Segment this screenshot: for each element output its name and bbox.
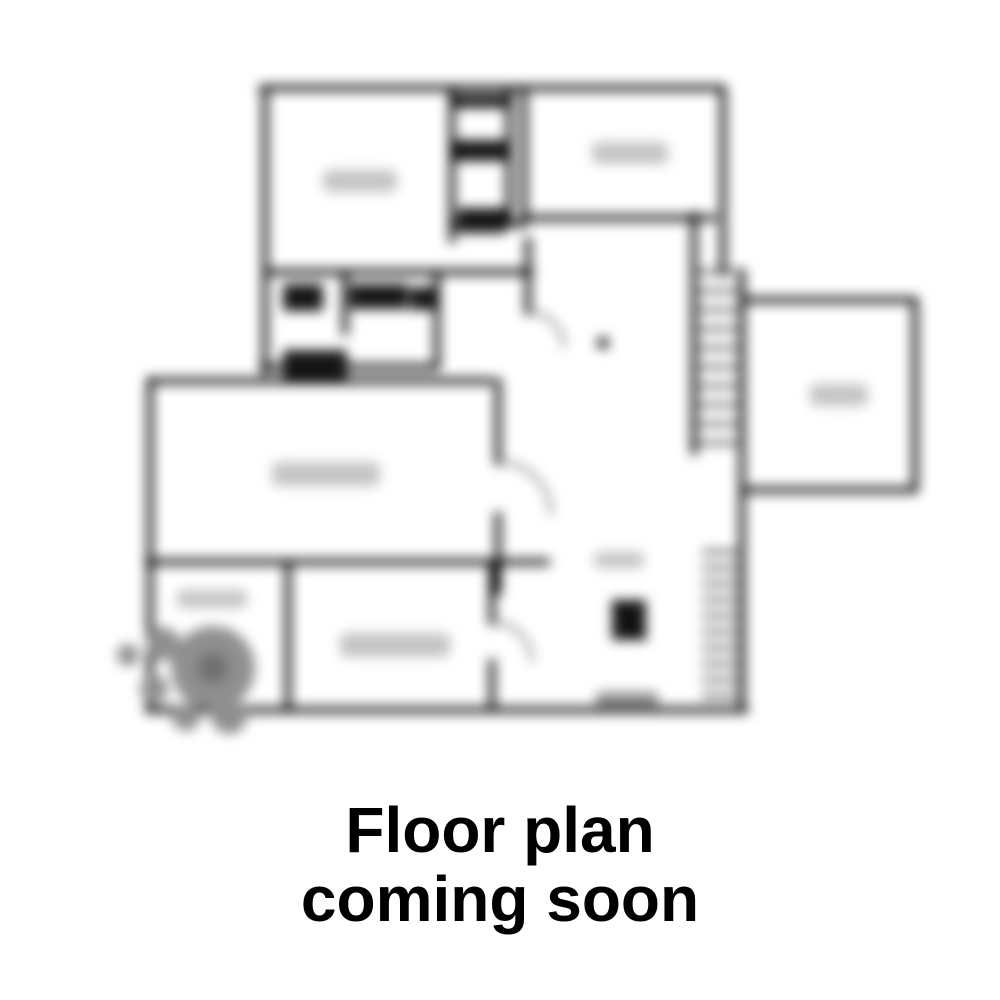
coming-soon-caption: Floor plan coming soon <box>0 796 1000 934</box>
stairs-icon <box>698 272 738 696</box>
floorplan-image <box>0 0 1000 770</box>
caption-line-2: coming soon <box>0 865 1000 934</box>
floorplan-drawing <box>0 0 1000 770</box>
caption-line-1: Floor plan <box>0 796 1000 865</box>
floorplan-placeholder-page: Floor plan coming soon <box>0 0 1000 1000</box>
door-arcs-layer <box>492 312 564 662</box>
walls-layer <box>148 88 915 710</box>
shrub-icon <box>117 626 255 734</box>
